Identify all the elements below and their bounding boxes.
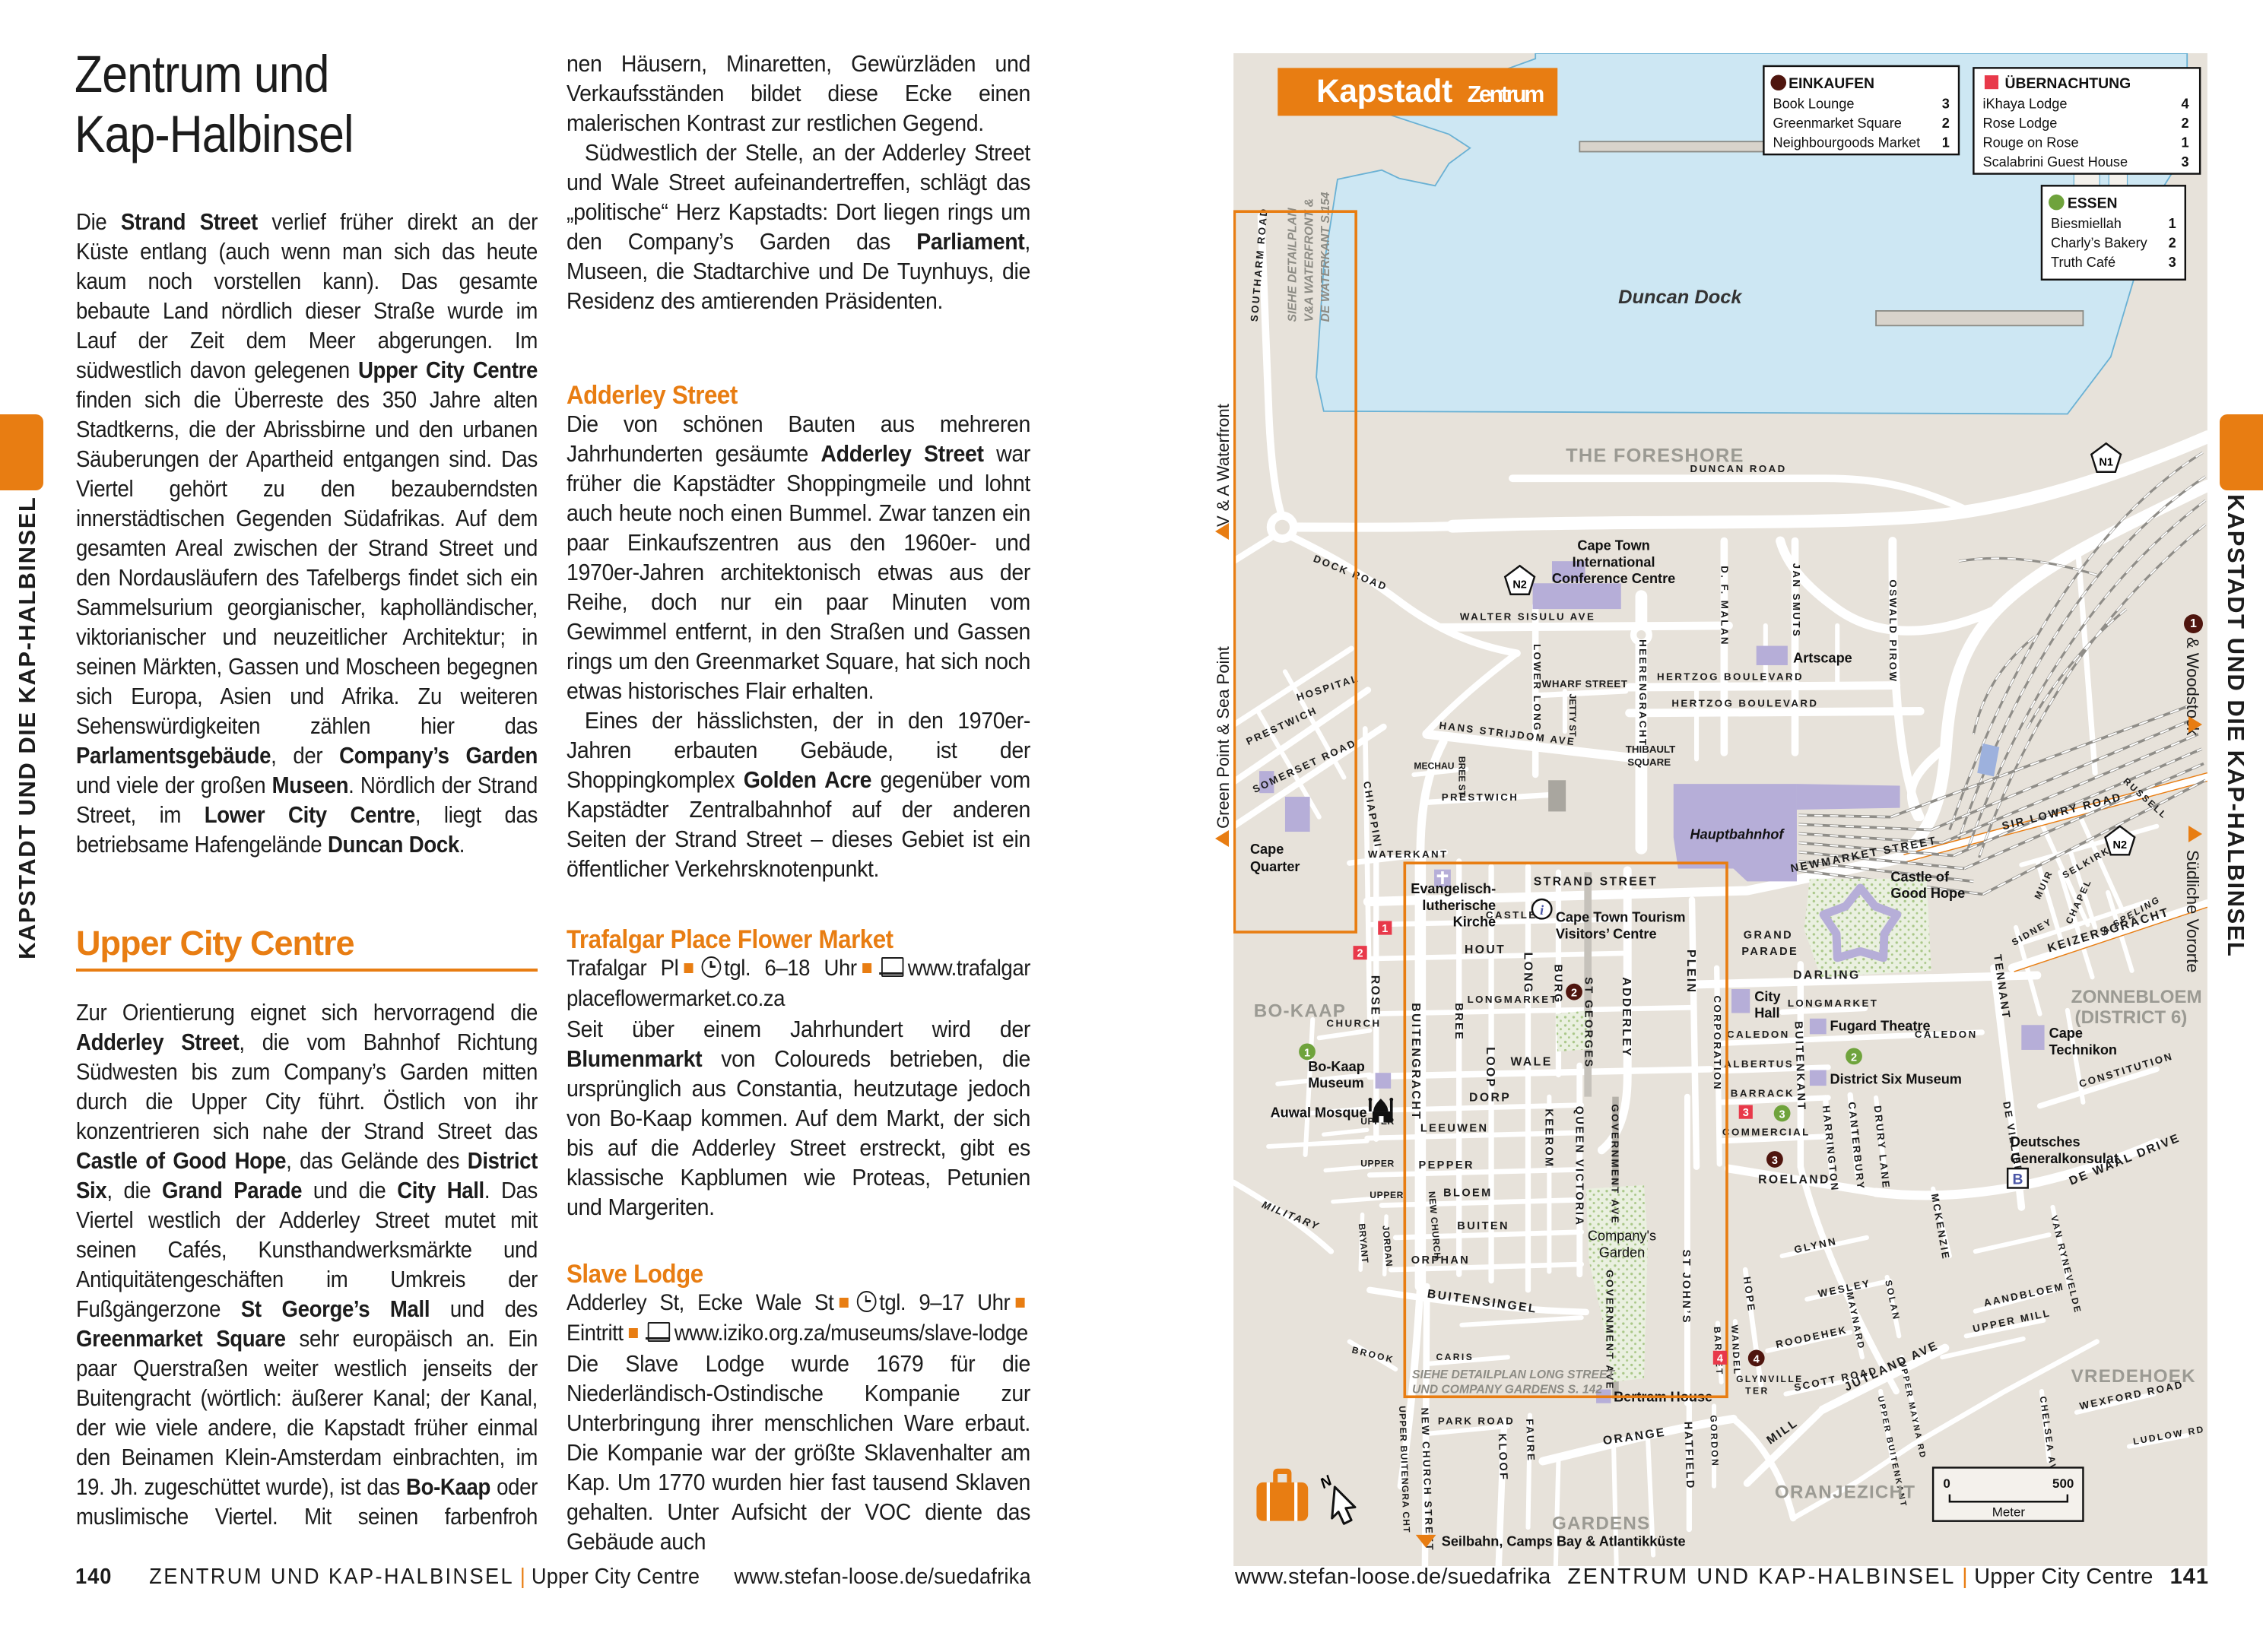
svg-text:3: 3 <box>2169 255 2176 270</box>
svg-text:PARADE: PARADE <box>1741 946 1798 958</box>
svg-text:PARK ROAD: PARK ROAD <box>1438 1416 1515 1427</box>
svg-text:N2: N2 <box>1512 579 1527 591</box>
svg-text:BURG: BURG <box>1552 964 1564 1004</box>
svg-text:1: 1 <box>1304 1047 1310 1059</box>
svg-text:ADDERLEY: ADDERLEY <box>1620 977 1633 1057</box>
svg-text:DARLING: DARLING <box>1793 969 1861 982</box>
svg-text:City: City <box>1754 989 1780 1004</box>
svg-text:BUITENGRACHT: BUITENGRACHT <box>1409 1003 1422 1121</box>
svg-text:HOUT: HOUT <box>1465 943 1506 956</box>
svg-text:Cape Town: Cape Town <box>1577 538 1649 553</box>
svg-text:SIEHE DETAILPLAN LONG STREET: SIEHE DETAILPLAN LONG STREET <box>1412 1368 1615 1381</box>
svg-text:Kirche: Kirche <box>1453 915 1496 930</box>
svg-text:WALE: WALE <box>1511 1056 1553 1069</box>
svg-text:PEPPER: PEPPER <box>1418 1159 1474 1172</box>
svg-text:0: 0 <box>1943 1476 1950 1491</box>
svg-text:GARDENS: GARDENS <box>1552 1514 1650 1534</box>
svg-text:Fugard Theatre: Fugard Theatre <box>1830 1019 1931 1034</box>
svg-text:3: 3 <box>1942 97 1950 112</box>
svg-text:HATFIELD: HATFIELD <box>1681 1422 1696 1491</box>
svg-text:Rose Lodge: Rose Lodge <box>1982 116 2057 131</box>
svg-text:BUITEN: BUITEN <box>1457 1220 1509 1232</box>
svg-text:MECHAU: MECHAU <box>1414 761 1454 772</box>
svg-text:HEERENGRACHT: HEERENGRACHT <box>1637 639 1649 747</box>
svg-text:LONGMARKET: LONGMARKET <box>1788 997 1879 1009</box>
svg-text:CALEDON: CALEDON <box>1727 1029 1790 1040</box>
svg-text:International: International <box>1573 554 1655 569</box>
svg-text:LONG: LONG <box>1522 953 1535 994</box>
svg-text:1: 1 <box>1382 923 1388 935</box>
svg-text:Auwal Mosque: Auwal Mosque <box>1271 1105 1367 1120</box>
svg-text:N1: N1 <box>2099 456 2113 468</box>
svg-text:Cape Town Tourism: Cape Town Tourism <box>1556 910 1686 925</box>
svg-text:GLYNVILLE: GLYNVILLE <box>1736 1374 1804 1384</box>
svg-text:Cape: Cape <box>1250 842 1284 857</box>
svg-text:Scalabrini Guest House: Scalabrini Guest House <box>1982 154 2128 170</box>
svg-text:Hall: Hall <box>1754 1006 1779 1021</box>
svg-text:SQUARE: SQUARE <box>1627 756 1671 768</box>
svg-text:BREE: BREE <box>1452 1003 1465 1041</box>
svg-text:lutherische: lutherische <box>1422 898 1496 913</box>
svg-text:BLOEM: BLOEM <box>1443 1187 1493 1199</box>
svg-text:1: 1 <box>1942 135 1950 150</box>
svg-text:ST JOHN’S: ST JOHN’S <box>1680 1250 1692 1324</box>
svg-text:Evangelisch-: Evangelisch- <box>1411 881 1496 896</box>
svg-text:N2: N2 <box>2113 839 2128 851</box>
svg-text:Book Lounge: Book Lounge <box>1773 97 1854 112</box>
svg-text:UPPER: UPPER <box>1370 1190 1404 1200</box>
svg-text:CORPORATION: CORPORATION <box>1712 996 1723 1091</box>
svg-text:THIBAULT: THIBAULT <box>1626 744 1675 755</box>
svg-text:3: 3 <box>1743 1107 1749 1119</box>
svg-text:GORDON: GORDON <box>1708 1415 1720 1467</box>
svg-text:Artscape: Artscape <box>1793 650 1852 665</box>
svg-text:2: 2 <box>2182 116 2189 131</box>
svg-text:CARIS: CARIS <box>1436 1352 1474 1362</box>
svg-text:KLOOF: KLOOF <box>1496 1433 1509 1481</box>
svg-text:Technikon: Technikon <box>2049 1042 2117 1057</box>
svg-text:B: B <box>2012 1172 2023 1188</box>
svg-text:BREE ST: BREE ST <box>1457 756 1468 797</box>
svg-text:Hauptbahnhof: Hauptbahnhof <box>1690 827 1785 842</box>
svg-text:HERTZOG BOULEVARD: HERTZOG BOULEVARD <box>1657 671 1804 682</box>
svg-text:QUEEN VICTORIA: QUEEN VICTORIA <box>1573 1106 1585 1227</box>
svg-text:ROSE: ROSE <box>1369 975 1382 1016</box>
svg-text:3: 3 <box>1779 1109 1785 1121</box>
svg-text:4: 4 <box>1754 1353 1760 1365</box>
svg-text:UND COMPANY GARDENS S. 142: UND COMPANY GARDENS S. 142 <box>1412 1383 1602 1396</box>
svg-text:3: 3 <box>2182 154 2189 170</box>
svg-text:ORANJEZICHT: ORANJEZICHT <box>1775 1482 1915 1502</box>
svg-text:FAURE: FAURE <box>1524 1419 1537 1463</box>
svg-text:Zentrum: Zentrum <box>1468 82 1545 107</box>
svg-text:ROELAND: ROELAND <box>1758 1173 1830 1186</box>
svg-text:Meter: Meter <box>1992 1505 2026 1520</box>
svg-text:PLEIN: PLEIN <box>1684 950 1697 994</box>
svg-text:ESSEN: ESSEN <box>2068 195 2118 211</box>
svg-text:D. F. MALAN: D. F. MALAN <box>1719 566 1731 646</box>
svg-text:Museum: Museum <box>1308 1076 1364 1091</box>
svg-text:UPPER: UPPER <box>1360 1159 1395 1169</box>
svg-text:Conference Centre: Conference Centre <box>1552 571 1675 586</box>
svg-text:KEEROM: KEEROM <box>1543 1108 1555 1168</box>
svg-text:(DISTRICT 6): (DISTRICT 6) <box>2075 1007 2188 1028</box>
svg-text:ÜBERNACHTUNG: ÜBERNACHTUNG <box>2005 75 2131 92</box>
svg-text:Visitors’ Centre: Visitors’ Centre <box>1556 926 1657 941</box>
svg-text:OSWALD PIROW: OSWALD PIROW <box>1887 579 1899 683</box>
svg-text:TER: TER <box>1745 1386 1769 1397</box>
svg-text:i: i <box>1540 902 1544 918</box>
svg-text:SIEHE DETAILPLAN: SIEHE DETAILPLAN <box>1286 208 1299 322</box>
svg-text:Generalkonsulat: Generalkonsulat <box>2011 1151 2119 1166</box>
svg-text:500: 500 <box>2052 1476 2074 1491</box>
svg-text:Charly’s Bakery: Charly’s Bakery <box>2051 235 2148 250</box>
svg-text:4: 4 <box>1717 1352 1723 1365</box>
svg-text:iKhaya Lodge: iKhaya Lodge <box>1982 97 2067 112</box>
svg-text:EINKAUFEN: EINKAUFEN <box>1788 75 1874 92</box>
svg-text:2: 2 <box>1851 1051 1857 1064</box>
svg-text:2: 2 <box>1942 116 1950 131</box>
svg-text:Cape: Cape <box>2049 1026 2083 1041</box>
svg-text:4: 4 <box>2182 97 2189 112</box>
svg-text:1: 1 <box>2182 135 2189 150</box>
svg-text:3: 3 <box>1772 1155 1778 1167</box>
svg-text:Company's: Company's <box>1588 1228 1656 1243</box>
svg-text:LEEUWEN: LEEUWEN <box>1420 1123 1489 1135</box>
svg-text:ZONNEBLOEM: ZONNEBLOEM <box>2071 987 2202 1007</box>
svg-text:VREDEHOEK: VREDEHOEK <box>2071 1366 2196 1387</box>
svg-text:V&A WATERFRONT &: V&A WATERFRONT & <box>1303 198 1316 322</box>
svg-text:GRAND: GRAND <box>1744 929 1793 941</box>
svg-text:Good Hope: Good Hope <box>1890 886 1965 901</box>
svg-text:District Six Museum: District Six Museum <box>1830 1072 1962 1087</box>
svg-text:Neighbourgoods Market: Neighbourgoods Market <box>1773 135 1920 150</box>
svg-text:Biesmiellah: Biesmiellah <box>2051 216 2122 231</box>
svg-text:WALTER SISULU AVE: WALTER SISULU AVE <box>1460 611 1595 623</box>
svg-text:BO-KAAP: BO-KAAP <box>1254 1000 1346 1021</box>
svg-text:COMMERCIAL: COMMERCIAL <box>1722 1127 1811 1138</box>
svg-text:Kapstadt: Kapstadt <box>1316 73 1452 109</box>
svg-text:2: 2 <box>2169 235 2176 250</box>
svg-text:Seilbahn, Camps Bay & Atlantik: Seilbahn, Camps Bay & Atlantikküste <box>1442 1533 1686 1549</box>
svg-text:Quarter: Quarter <box>1250 859 1300 874</box>
svg-text:Greenmarket Square: Greenmarket Square <box>1773 116 1901 131</box>
svg-text:Duncan Dock: Duncan Dock <box>1618 287 1743 308</box>
svg-text:Garden: Garden <box>1599 1245 1646 1260</box>
svg-text:LOWER LONG: LOWER LONG <box>1531 644 1543 732</box>
svg-text:HERTZOG BOULEVARD: HERTZOG BOULEVARD <box>1671 697 1818 709</box>
svg-text:WHARF STREET: WHARF STREET <box>1542 678 1628 690</box>
svg-text:THE FORESHORE: THE FORESHORE <box>1566 445 1744 466</box>
svg-text:LONGMARKET: LONGMARKET <box>1468 994 1559 1005</box>
svg-text:LOOP: LOOP <box>1484 1047 1496 1088</box>
svg-text:GOVERNMENT AVE: GOVERNMENT AVE <box>1610 1104 1621 1225</box>
svg-text:2: 2 <box>1571 988 1577 1000</box>
svg-text:DORP: DORP <box>1469 1092 1511 1105</box>
svg-text:JETTY ST: JETTY ST <box>1567 693 1578 737</box>
svg-text:Rouge on Rose: Rouge on Rose <box>1982 135 2078 150</box>
svg-text:1: 1 <box>2169 216 2176 231</box>
svg-text:Truth Café: Truth Café <box>2051 255 2115 270</box>
svg-text:Castle of: Castle of <box>1890 869 1950 884</box>
svg-text:WATERKANT: WATERKANT <box>1368 848 1449 860</box>
svg-text:STRAND STREET: STRAND STREET <box>1534 875 1658 888</box>
svg-text:Bo-Kaap: Bo-Kaap <box>1308 1059 1365 1074</box>
svg-text:2: 2 <box>1357 948 1363 960</box>
svg-text:ALBERTUS: ALBERTUS <box>1724 1058 1794 1070</box>
svg-text:Deutsches: Deutsches <box>2011 1134 2080 1149</box>
svg-text:JAN SMUTS: JAN SMUTS <box>1791 563 1802 639</box>
svg-text:PRESTWICH: PRESTWICH <box>1442 791 1519 803</box>
svg-text:BARRACK: BARRACK <box>1731 1088 1795 1099</box>
svg-text:ST GEORGES: ST GEORGES <box>1582 977 1595 1068</box>
